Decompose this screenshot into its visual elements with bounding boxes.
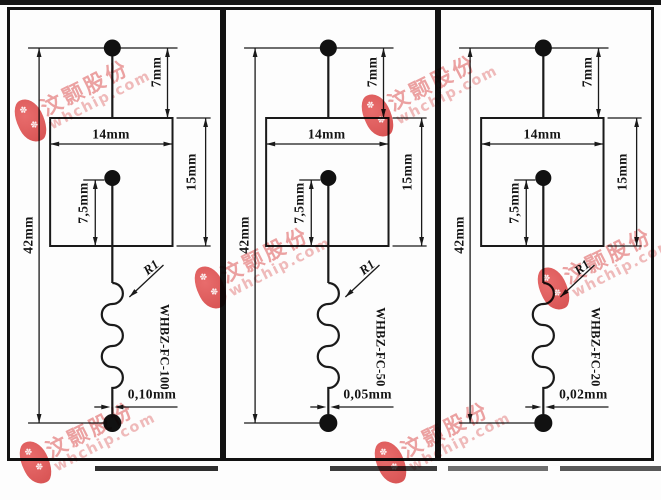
wire-diameter-label: 0,10mm xyxy=(128,387,177,401)
dim-body-height-label: 15mm xyxy=(400,153,414,191)
dim-body-width-label: 14mm xyxy=(308,127,346,141)
fuse-drawing xyxy=(226,10,436,458)
bottom-cropped-border-bar xyxy=(330,466,437,471)
seal-mark-icon xyxy=(33,460,46,473)
dim-overall-label: 42mm xyxy=(21,216,35,254)
dim-inner-lead-label: 7,5mm xyxy=(76,182,90,223)
dim-body-height-label: 15mm xyxy=(184,153,198,191)
dim-top-lead-label: 7mm xyxy=(581,57,595,87)
fuse-drawing xyxy=(10,10,220,458)
dim-body-width-label: 14mm xyxy=(92,127,130,141)
drawing-panel-row: 7mm 14mm 15mm 7,5mm 42mm R1 WHBZ-FC-100 … xyxy=(7,7,654,461)
part-number-label: WHBZ-FC-20 xyxy=(589,307,602,386)
dim-top-lead-label: 7mm xyxy=(149,57,163,87)
bottom-cropped-border-bar xyxy=(95,466,218,471)
bottom-cropped-border-bar xyxy=(448,466,548,471)
part-number-label: WHBZ-FC-100 xyxy=(158,304,171,390)
part-number-label: WHBZ-FC-50 xyxy=(373,307,386,386)
dim-overall-label: 42mm xyxy=(453,216,467,254)
dim-body-height-label: 15mm xyxy=(616,153,630,191)
wire-diameter-label: 0,02mm xyxy=(559,387,608,401)
top-cropped-border-bar xyxy=(0,0,661,5)
dim-top-lead-label: 7mm xyxy=(365,57,379,87)
wire-diameter-label: 0,05mm xyxy=(343,387,392,401)
dim-overall-label: 42mm xyxy=(237,216,251,254)
dim-body-width-label: 14mm xyxy=(524,127,562,141)
dim-inner-lead-label: 7,5mm xyxy=(508,182,522,223)
fuse-drawing xyxy=(441,10,651,458)
drawing-panel-fc-20: 7mm 14mm 15mm 7,5mm 42mm R1 WHBZ-FC-20 0… xyxy=(438,7,654,461)
drawing-panel-fc-100: 7mm 14mm 15mm 7,5mm 42mm R1 WHBZ-FC-100 … xyxy=(7,7,223,461)
bottom-cropped-border-bar xyxy=(560,466,661,471)
page: { "page": { "background": "#fdfdfd", "li… xyxy=(0,0,661,471)
drawing-panel-fc-50: 7mm 14mm 15mm 7,5mm 42mm R1 WHBZ-FC-50 0… xyxy=(223,7,439,461)
dim-inner-lead-label: 7,5mm xyxy=(292,182,306,223)
